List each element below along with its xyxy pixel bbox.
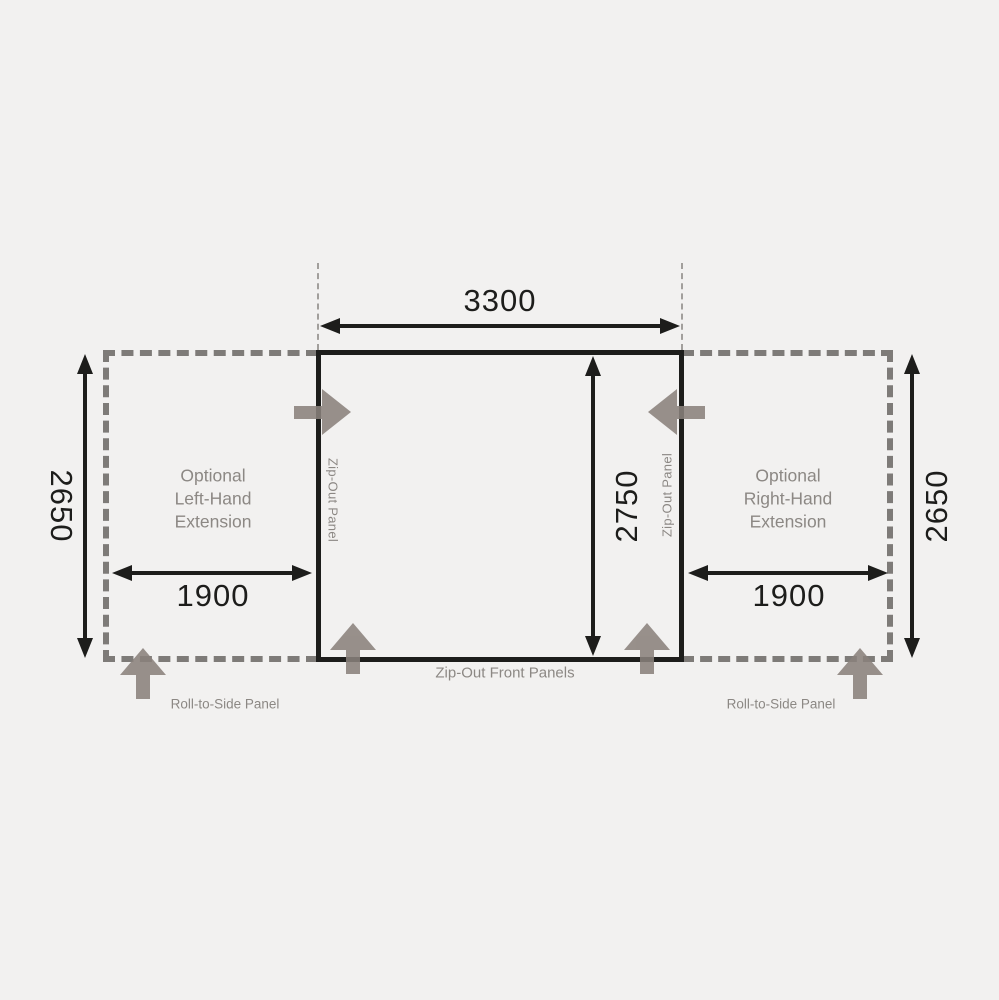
arrowhead-down-icon [585,636,601,656]
diagram-canvas: 3300 2750 2650 2650 1900 1900 Optional L… [0,0,999,1000]
zip-out-panel-right-label: Zip-Out Panel [660,453,675,537]
guide-line-right [681,263,683,350]
arrow-stem [136,675,150,699]
arrowhead-down-icon [77,638,93,658]
zip-out-panel-left-label: Zip-Out Panel [326,458,341,542]
zip-out-front-left-arrow-icon [330,623,376,674]
roll-to-side-right-arrow-icon [837,648,883,699]
roll-to-side-left-label: Roll-to-Side Panel [171,697,280,712]
arrowhead-right-icon [660,318,680,334]
left-extension-label: Optional Left-Hand Extension [175,465,252,534]
arrow-stem [640,650,654,674]
arrowhead-down-icon [904,638,920,658]
arrow-head [322,389,351,435]
arrow-head [120,648,166,675]
dimension-label-2650-right: 2650 [919,470,955,543]
dimension-line-3300 [320,318,680,334]
dimension-bar [83,367,87,645]
guide-line-left [317,263,319,350]
arrow-stem [677,406,705,419]
arrow-head [624,623,670,650]
arrowhead-right-icon [868,565,888,581]
dimension-bar [125,571,299,575]
zip-out-front-panels-label: Zip-Out Front Panels [435,665,574,682]
dimension-label-1900-right: 1900 [753,578,826,614]
dimension-label-1900-left: 1900 [177,578,250,614]
dimension-line-2750 [585,356,601,656]
dimension-label-2650-left: 2650 [43,470,79,543]
dimension-label-3300: 3300 [464,283,537,319]
arrow-head [648,389,677,435]
arrow-head [837,648,883,675]
arrow-stem [853,675,867,699]
dimension-label-2750: 2750 [609,470,645,543]
dimension-bar [591,369,595,643]
zip-out-front-right-arrow-icon [624,623,670,674]
zip-out-right-arrow-icon [648,389,705,435]
arrowhead-right-icon [292,565,312,581]
roll-to-side-right-label: Roll-to-Side Panel [727,697,836,712]
arrow-stem [346,650,360,674]
arrow-stem [294,406,322,419]
dimension-line-2650-right [904,354,920,658]
dimension-bar [910,367,914,645]
zip-out-left-arrow-icon [294,389,351,435]
dimension-bar [701,571,875,575]
dimension-line-2650-left [77,354,93,658]
dimension-bar [333,324,667,328]
roll-to-side-left-arrow-icon [120,648,166,699]
arrow-head [330,623,376,650]
right-extension-label: Optional Right-Hand Extension [744,465,833,534]
